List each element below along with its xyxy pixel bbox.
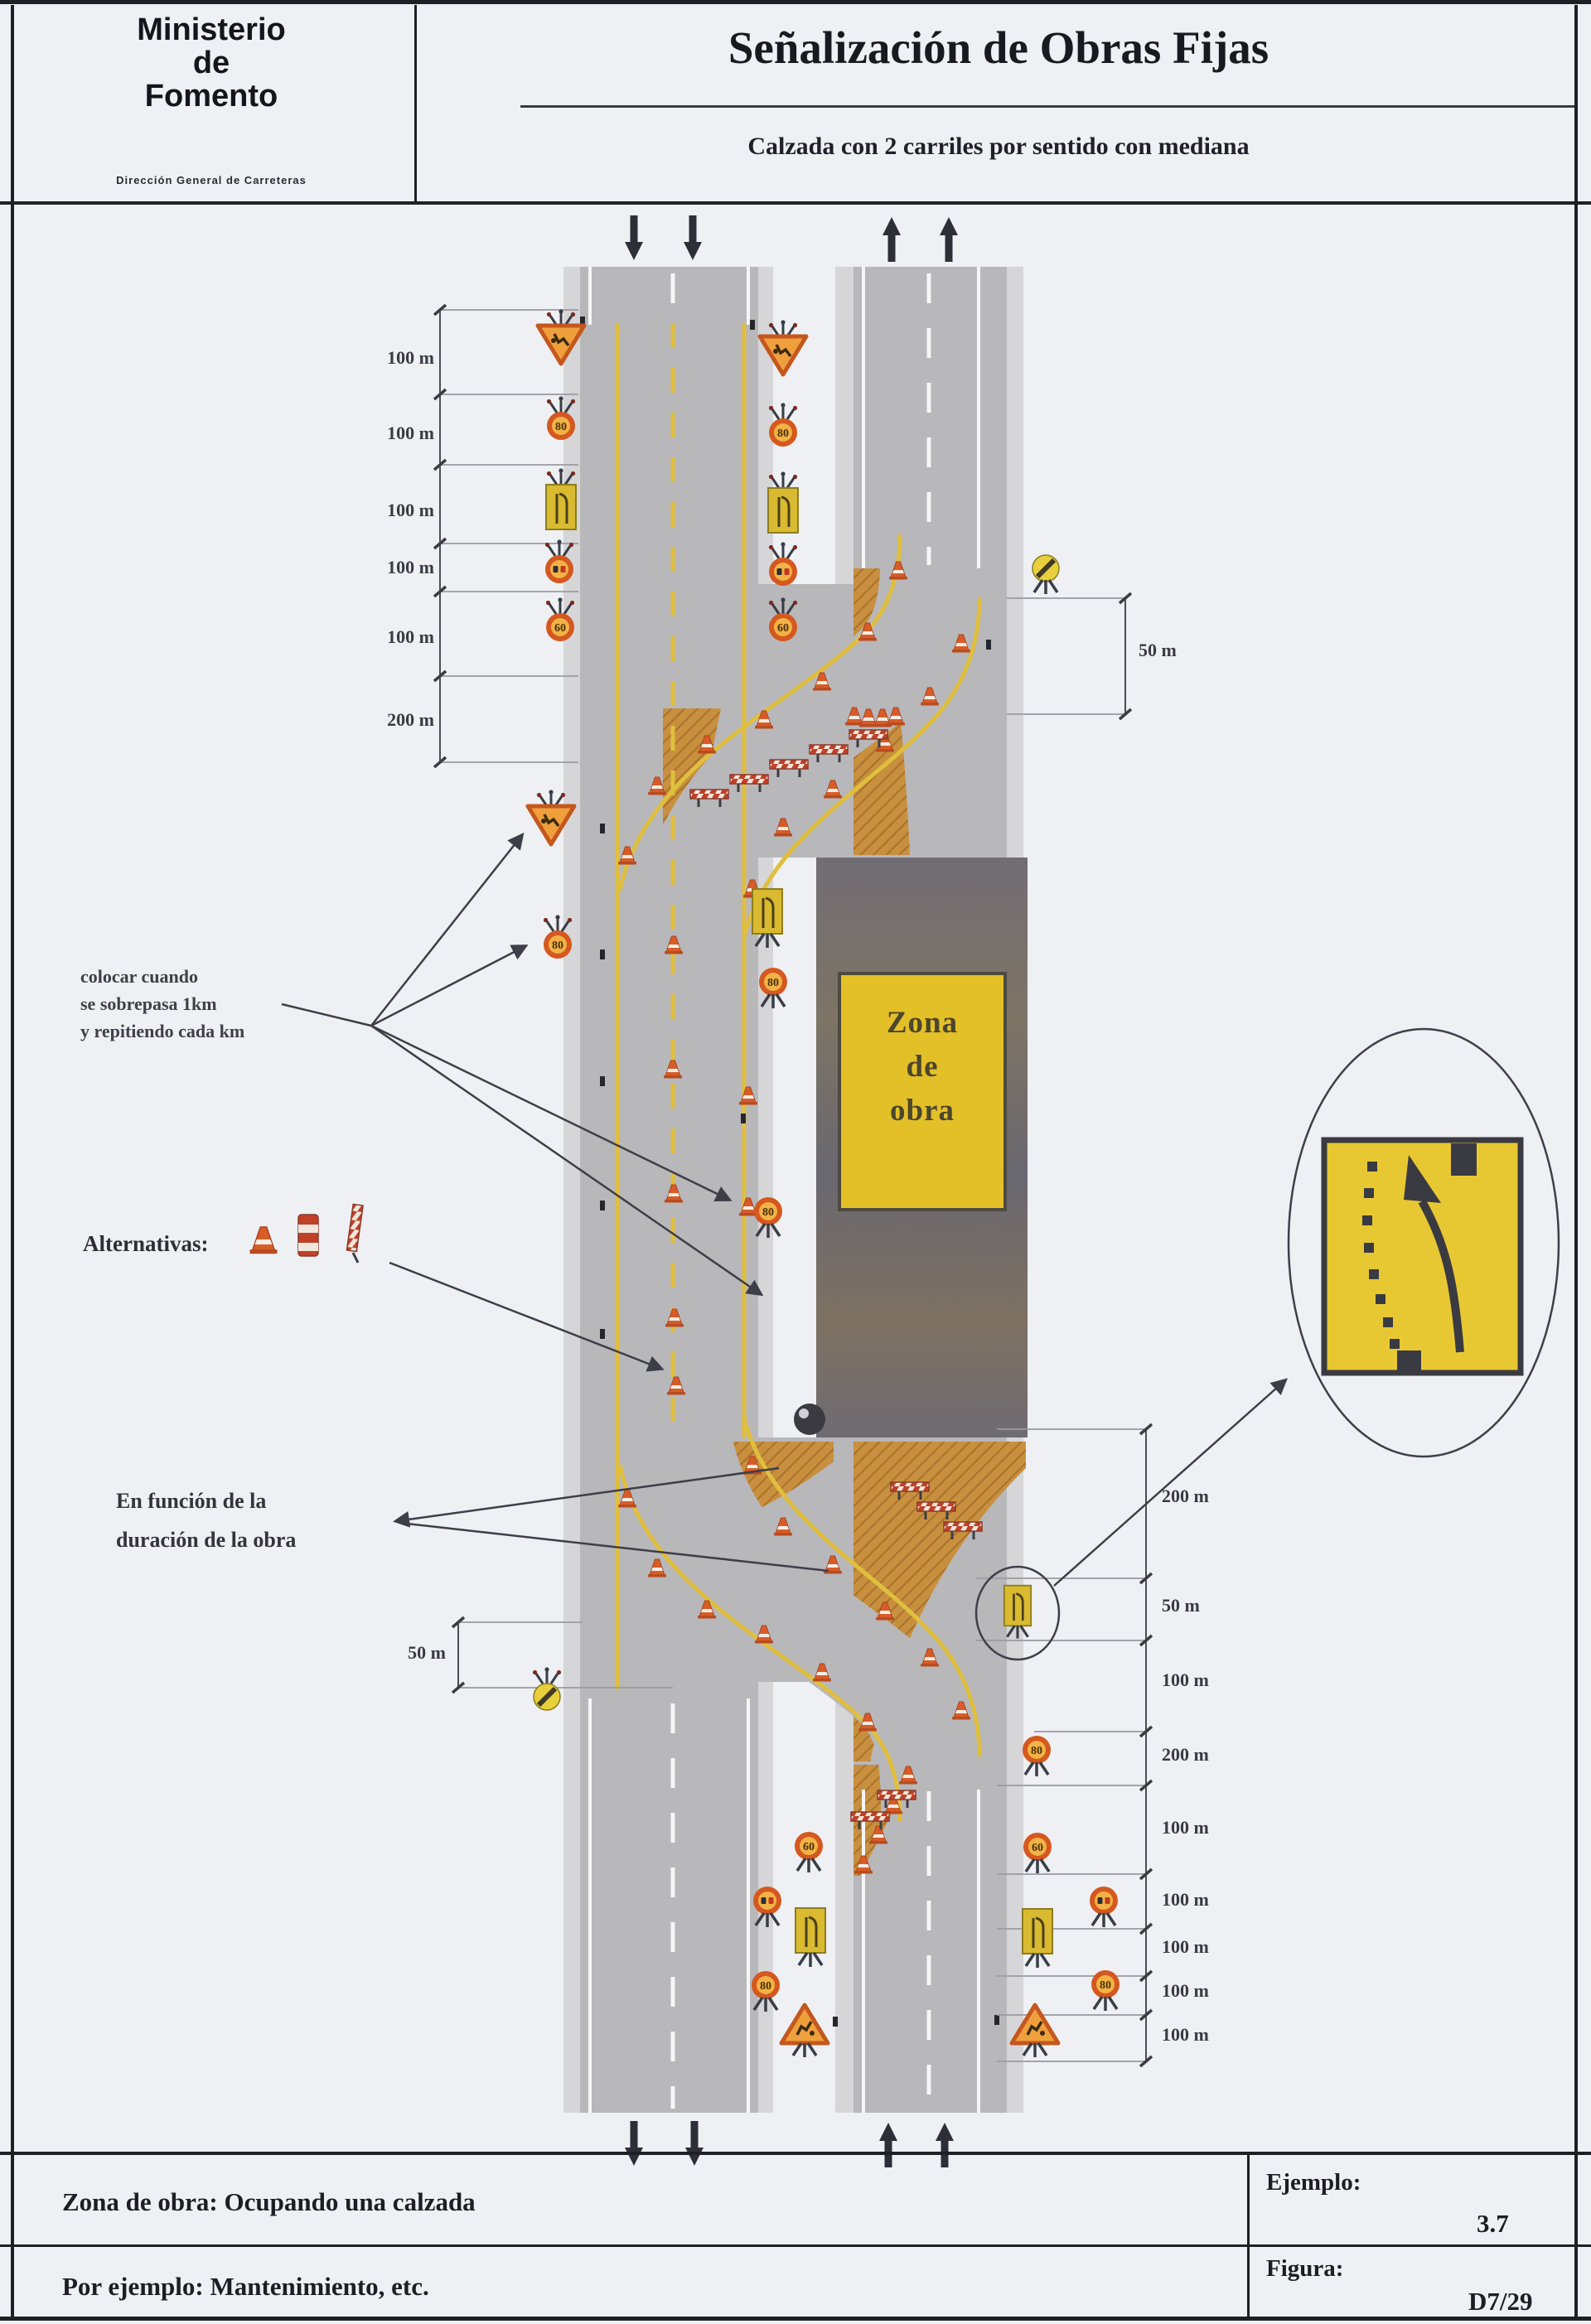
speed-limit-sign — [547, 396, 575, 440]
works-triangle-sign — [781, 2005, 828, 2057]
example-value: 3.7 — [1477, 2209, 1509, 2239]
distance-label: 100 m — [1162, 2024, 1209, 2046]
repeat-note-line1: colocar cuando — [80, 963, 312, 990]
header-divider — [0, 201, 1591, 205]
footer-vertical-divider — [1247, 2152, 1250, 2321]
footer-note: Por ejemplo: Mantenimiento, etc. — [62, 2272, 429, 2302]
figure-value: D7/29 — [1468, 2287, 1533, 2317]
work-zone-line3: obra — [839, 1089, 1005, 1133]
footer-divider-top — [0, 2152, 1591, 2155]
frame-left — [11, 5, 14, 2320]
ministry-line1: Ministerio — [25, 13, 398, 46]
work-zone-line2: de — [839, 1045, 1005, 1089]
detail-callout — [976, 1029, 1559, 1660]
example-label: Ejemplo: — [1266, 2169, 1361, 2196]
svg-text:80: 80 — [1031, 1745, 1042, 1757]
svg-text:60: 60 — [777, 622, 789, 635]
page-title: Señalización de Obras Fijas — [423, 22, 1574, 74]
ministry-department: Dirección General de Carreteras — [25, 174, 398, 186]
no-overtaking-sign — [769, 542, 797, 586]
ministry-logo: Ministerio de Fomento — [25, 13, 398, 113]
footer-description: Zona de obra: Ocupando una calzada — [62, 2187, 476, 2217]
svg-text:60: 60 — [554, 622, 566, 635]
lane-shift-detail-sign — [1324, 1140, 1521, 1373]
no-overtaking-sign — [545, 539, 573, 583]
svg-text:80: 80 — [1100, 1979, 1111, 1992]
distance-label: 100 m — [335, 626, 434, 648]
distance-label: 100 m — [335, 347, 434, 369]
cone-icon — [250, 1227, 278, 1254]
distance-label: 100 m — [335, 423, 434, 444]
frame-right — [1574, 5, 1578, 2320]
work-zone-line1: Zona — [839, 1001, 1005, 1045]
header-vertical-divider — [414, 5, 417, 205]
svg-text:60: 60 — [803, 1841, 815, 1853]
end-of-restrictions-sign — [1032, 555, 1059, 594]
speed-limit-sign — [546, 597, 574, 641]
svg-text:80: 80 — [552, 940, 563, 952]
title-divider — [520, 105, 1574, 108]
lane-closed-panel-sign — [1023, 1909, 1052, 1968]
distance-label: 100 m — [1162, 1936, 1209, 1958]
figure-label: Figura: — [1266, 2255, 1343, 2283]
speed-limit-sign — [544, 915, 572, 959]
svg-text:80: 80 — [762, 1206, 774, 1219]
duration-note: En función de la duración de la obra — [116, 1481, 414, 1559]
duration-note-line2: duración de la obra — [116, 1520, 414, 1559]
road-works-diagram: 80 80 80 80 80 80 80 80 60 60 60 60 — [0, 0, 1591, 2324]
svg-text:80: 80 — [555, 421, 567, 433]
page-subtitle: Calzada con 2 carriles por sentido con m… — [423, 133, 1574, 161]
duration-note-line1: En función de la — [116, 1481, 414, 1520]
frame-bottom — [0, 2317, 1591, 2321]
distance-label: 50 m — [348, 1642, 446, 1664]
repeat-note: colocar cuando se sobrepasa 1km y repiti… — [80, 963, 312, 1045]
distance-label: 100 m — [335, 557, 434, 578]
footer-divider-mid — [0, 2244, 1591, 2247]
alternatives-icons — [250, 1204, 364, 1263]
work-zone-label: Zona de obra — [839, 1001, 1005, 1133]
svg-text:60: 60 — [1032, 1842, 1043, 1854]
post-icon — [346, 1204, 363, 1263]
distance-label: 100 m — [1162, 1980, 1209, 2002]
svg-text:80: 80 — [767, 977, 779, 989]
distance-label: 100 m — [335, 500, 434, 521]
svg-text:80: 80 — [760, 1980, 771, 1993]
distance-label: 200 m — [335, 709, 434, 731]
repeat-note-line2: se sobrepasa 1km — [80, 990, 312, 1017]
distance-label: 100 m — [1162, 1669, 1209, 1691]
distance-label: 50 m — [1139, 640, 1177, 661]
distance-label: 50 m — [1162, 1595, 1200, 1616]
distance-label: 200 m — [1162, 1744, 1209, 1766]
no-overtaking-sign — [1090, 1887, 1118, 1927]
barrel-icon — [298, 1215, 318, 1256]
frame-top — [0, 0, 1591, 4]
end-of-restrictions-sign — [533, 1667, 561, 1710]
scanned-page: 80 80 80 80 80 80 80 80 60 60 60 60 — [0, 0, 1591, 2324]
lane-closed-panel-sign — [795, 1908, 825, 1967]
repeat-note-line3: y repitiendo cada km — [80, 1017, 312, 1045]
distance-label: 100 m — [1162, 1817, 1209, 1838]
speed-limit-sign — [769, 403, 797, 447]
median-nose-marker — [794, 1404, 825, 1435]
ministry-line2: de — [25, 46, 398, 80]
no-overtaking-sign — [753, 1887, 781, 1927]
distance-label: 100 m — [1162, 1889, 1209, 1911]
alternatives-label: Alternativas: — [83, 1231, 208, 1257]
ministry-line3: Fomento — [25, 80, 398, 113]
svg-text:80: 80 — [777, 428, 789, 440]
distance-label: 200 m — [1162, 1486, 1209, 1507]
speed-limit-sign — [769, 597, 797, 641]
